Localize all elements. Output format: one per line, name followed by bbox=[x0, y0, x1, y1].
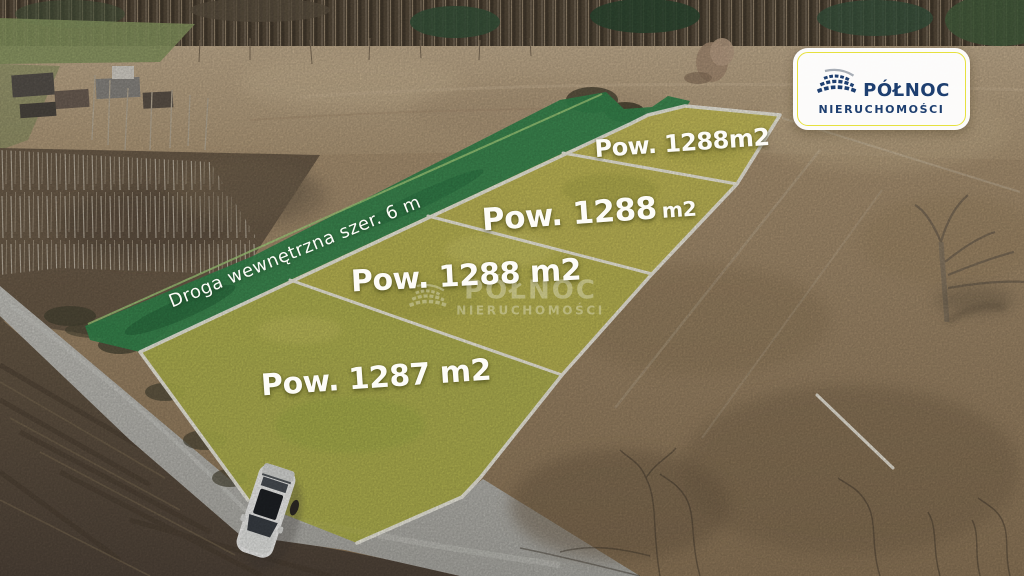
agency-name: PÓŁNOC bbox=[863, 82, 950, 102]
agency-logo-badge: PÓŁNOC NIERUCHOMOŚCI bbox=[793, 48, 970, 130]
plot-2-area-unit: m2 bbox=[661, 197, 697, 223]
logo-arcs-icon bbox=[813, 64, 859, 102]
aerial-listing-photo: Droga wewnętrzna szer. 6 m Pow. 1288m2 P… bbox=[0, 0, 1024, 576]
agency-subname: NIERUCHOMOŚCI bbox=[818, 104, 944, 115]
